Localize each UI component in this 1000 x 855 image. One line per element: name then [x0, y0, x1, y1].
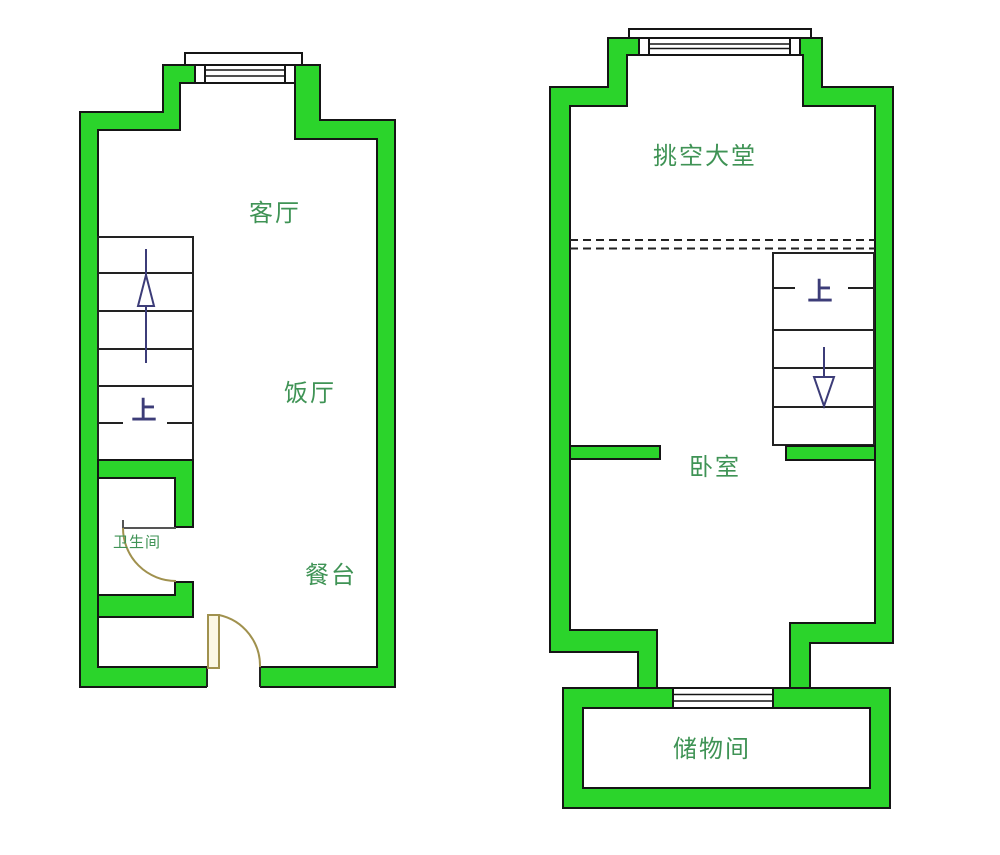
storage-window — [673, 688, 773, 708]
floor-two-staircase: 上 — [773, 253, 874, 445]
bedroom-wall-stub-left — [570, 446, 660, 459]
window-body — [673, 688, 773, 708]
floor-two-window — [629, 29, 811, 55]
entry-door — [207, 615, 260, 690]
door-panel — [208, 615, 219, 668]
bedroom-label: 卧室 — [689, 453, 741, 481]
bathroom-label: 卫生间 — [113, 533, 161, 551]
window-cap-right — [790, 38, 800, 55]
window-body — [195, 65, 295, 83]
floor-one-staircase: 上 — [98, 237, 193, 460]
dining-room-label: 饭厅 — [284, 379, 336, 407]
stairs-up-label: 上 — [131, 396, 156, 425]
stairs-up-label: 上 — [807, 277, 832, 306]
window-cap-left — [195, 65, 205, 83]
bathroom-lower-wall — [98, 582, 193, 617]
bathroom-upper-wall — [98, 460, 193, 527]
window-outer-sill — [185, 53, 302, 65]
void-hall-label: 挑空大堂 — [653, 142, 757, 170]
floor-one-window — [185, 53, 302, 83]
window-cap-left — [639, 38, 649, 55]
storage-room-label: 储物间 — [673, 735, 751, 763]
window-body — [639, 38, 800, 55]
bedroom-wall-stub-right — [786, 446, 875, 460]
dining-counter-label: 餐台 — [305, 561, 357, 589]
floor-plan-canvas: 上 客厅 饭厅 餐台 卫生间 — [0, 0, 1000, 855]
floor-two-plan: 上 挑空大堂 卧室 储物间 — [550, 29, 893, 808]
window-outer-sill — [629, 29, 811, 38]
floor-one-plan: 上 客厅 饭厅 餐台 卫生间 — [80, 53, 395, 690]
living-room-label: 客厅 — [249, 199, 301, 227]
floor-plan-drawing: 上 客厅 饭厅 餐台 卫生间 — [0, 0, 1000, 855]
window-cap-right — [285, 65, 295, 83]
door-swing-arc — [219, 615, 260, 667]
